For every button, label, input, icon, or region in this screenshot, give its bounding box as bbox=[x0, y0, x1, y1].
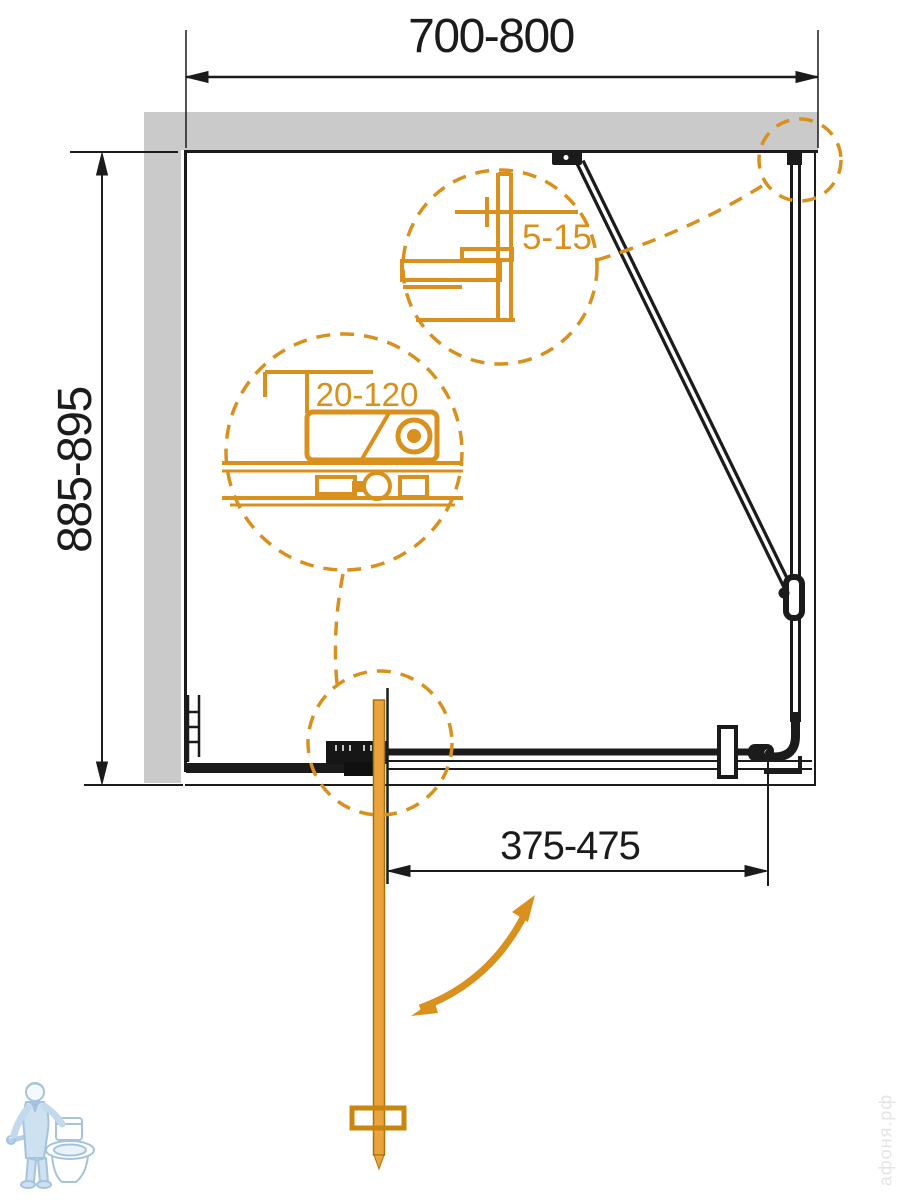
wall-left bbox=[144, 112, 181, 783]
detail-gap-label: 5-15 bbox=[522, 220, 592, 255]
wall-bracket-left bbox=[188, 695, 199, 762]
dim-width-label: 700-800 bbox=[408, 13, 574, 61]
detail-leader-bottom bbox=[335, 574, 343, 684]
detail-callout-circle-roller bbox=[226, 334, 462, 570]
dim-depth-label: 885-895 bbox=[52, 387, 100, 553]
bottom-rail bbox=[186, 727, 812, 777]
detail-adjust-label: 20-120 bbox=[316, 378, 419, 411]
site-watermark: афоня.рф bbox=[876, 1094, 897, 1186]
shower-enclosure-drawing bbox=[0, 0, 900, 1200]
fixed-panel bbox=[760, 152, 802, 772]
panel-pivot-bracket-icon bbox=[786, 577, 802, 618]
wall-top bbox=[144, 112, 818, 150]
plumber-with-toilet-logo-icon bbox=[6, 1078, 98, 1194]
door-swing-arc-arrow-icon bbox=[411, 895, 535, 1016]
diagram-canvas: 700-800 885-895 375-475 5-15 20-120 афон… bbox=[0, 0, 900, 1200]
dim-door-width-label: 375-475 bbox=[500, 826, 640, 866]
